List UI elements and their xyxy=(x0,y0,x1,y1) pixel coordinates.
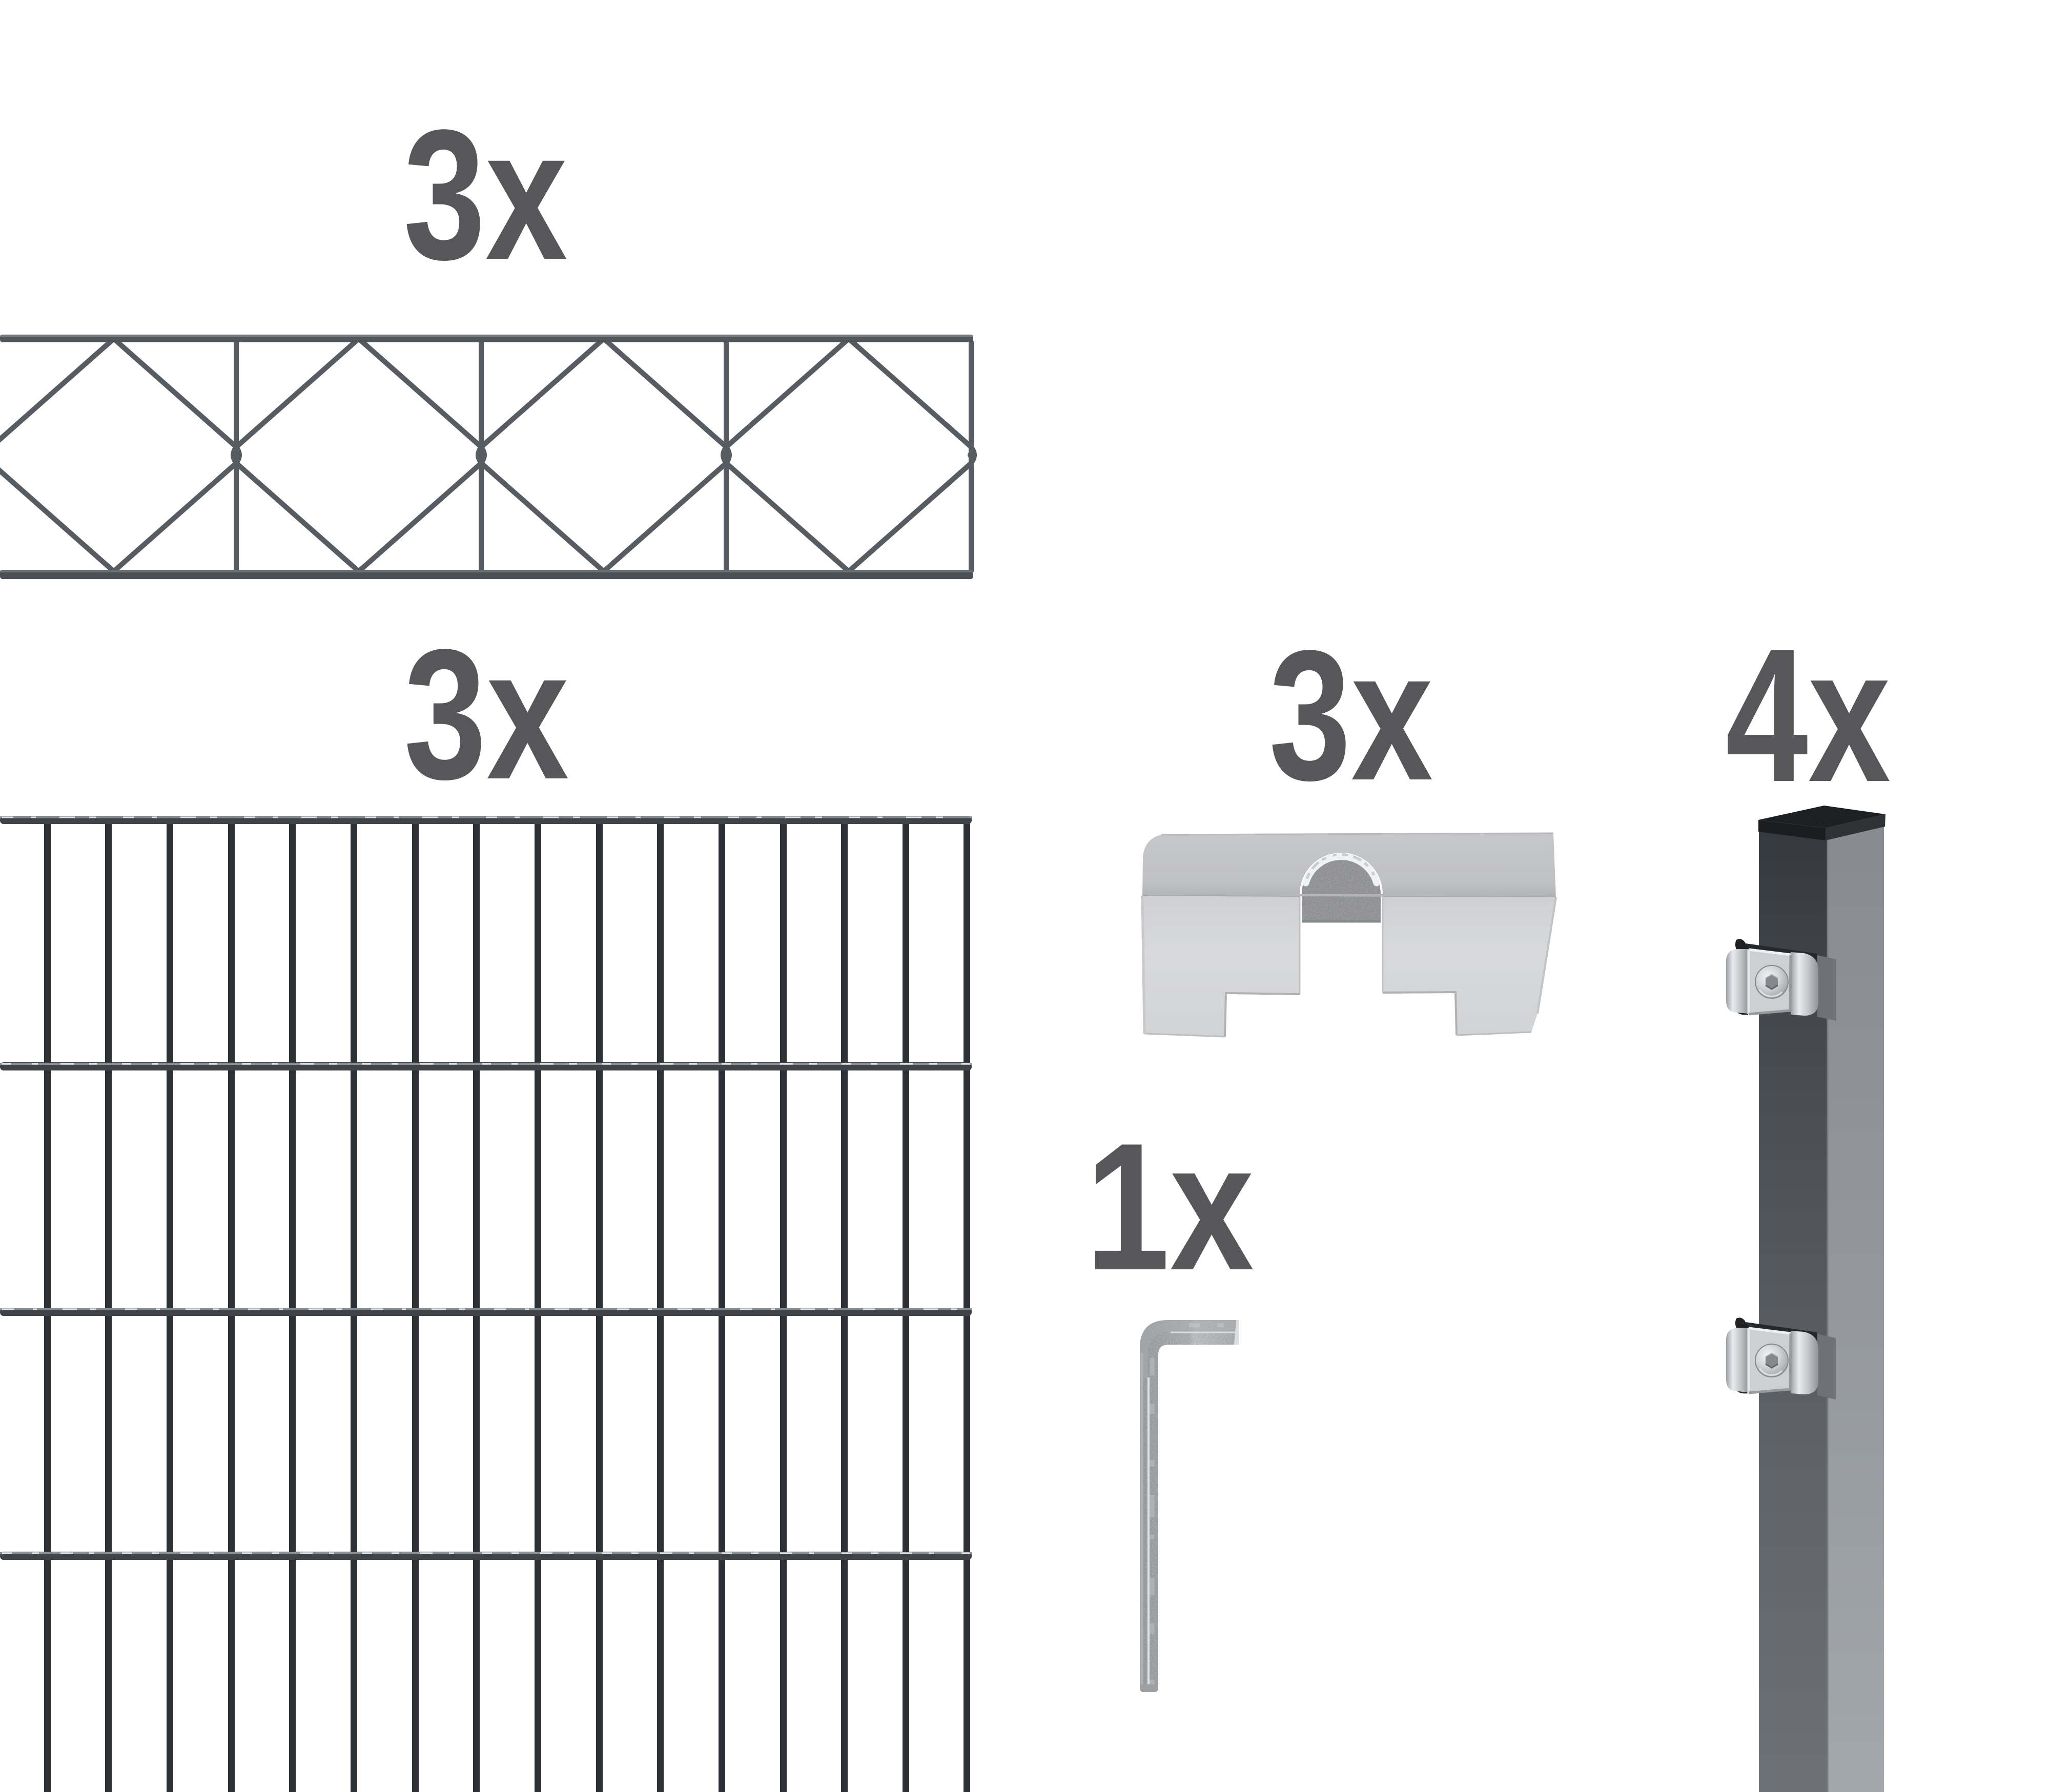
svg-text:3x: 3x xyxy=(1269,612,1434,819)
svg-text:1x: 1x xyxy=(1085,1106,1255,1308)
svg-text:3x: 3x xyxy=(403,91,568,298)
svg-text:4x: 4x xyxy=(1726,609,1892,821)
svg-text:3x: 3x xyxy=(404,611,570,818)
